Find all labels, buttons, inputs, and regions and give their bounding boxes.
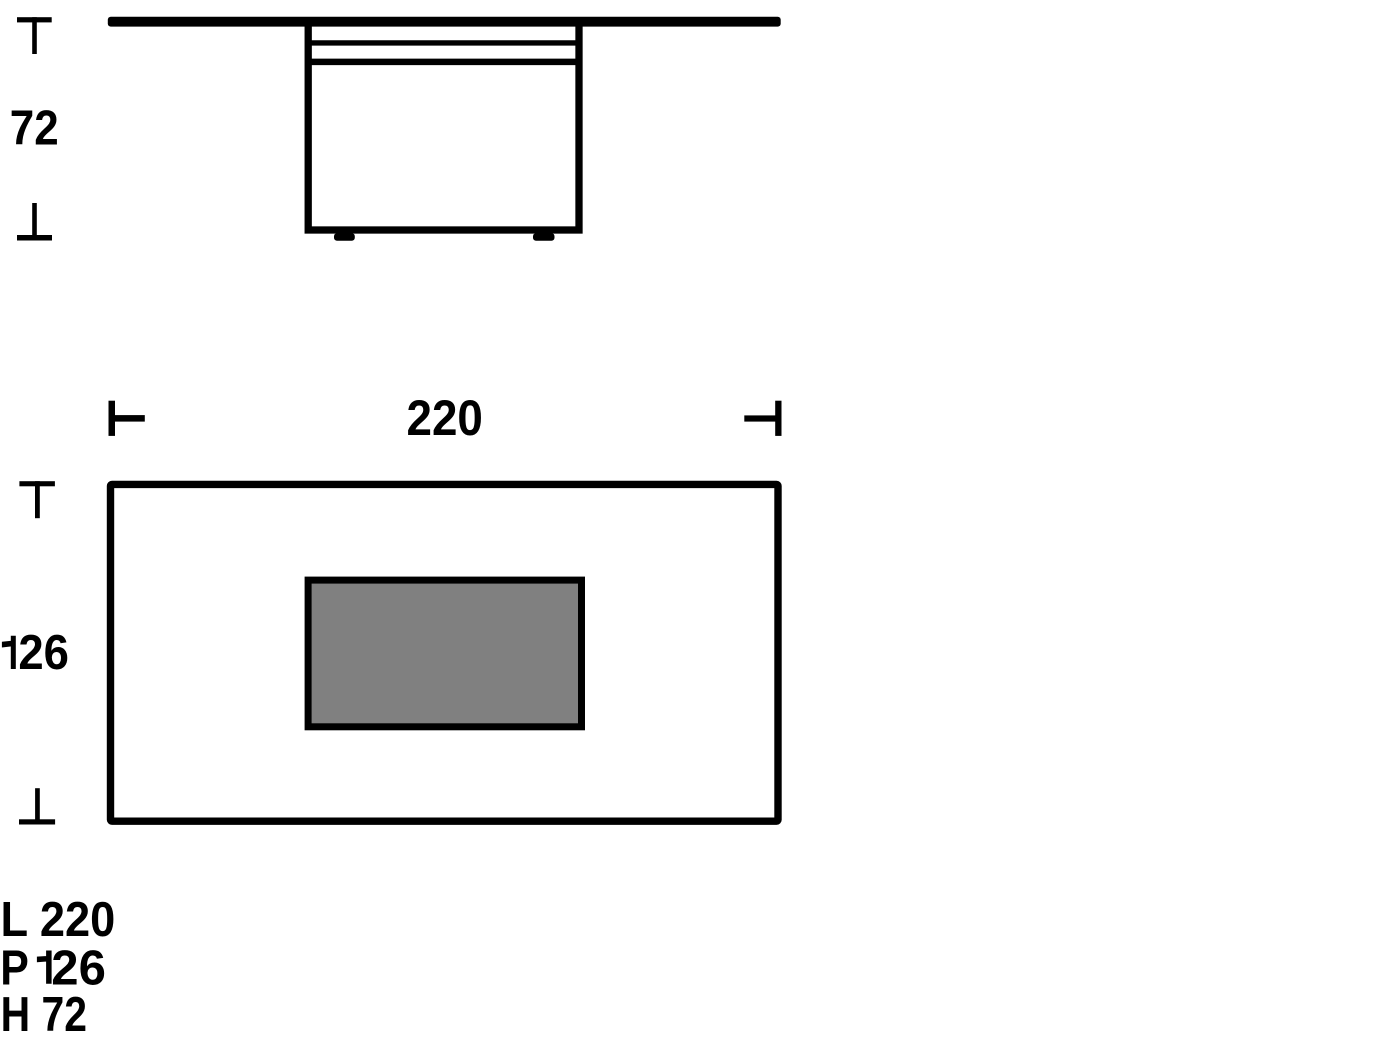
- svg-text:L 220: L 220: [1, 893, 116, 947]
- svg-text:220: 220: [407, 390, 483, 446]
- svg-text:26: 26: [18, 626, 69, 680]
- svg-text:H 72: H 72: [1, 988, 87, 1042]
- svg-text:72: 72: [10, 102, 59, 156]
